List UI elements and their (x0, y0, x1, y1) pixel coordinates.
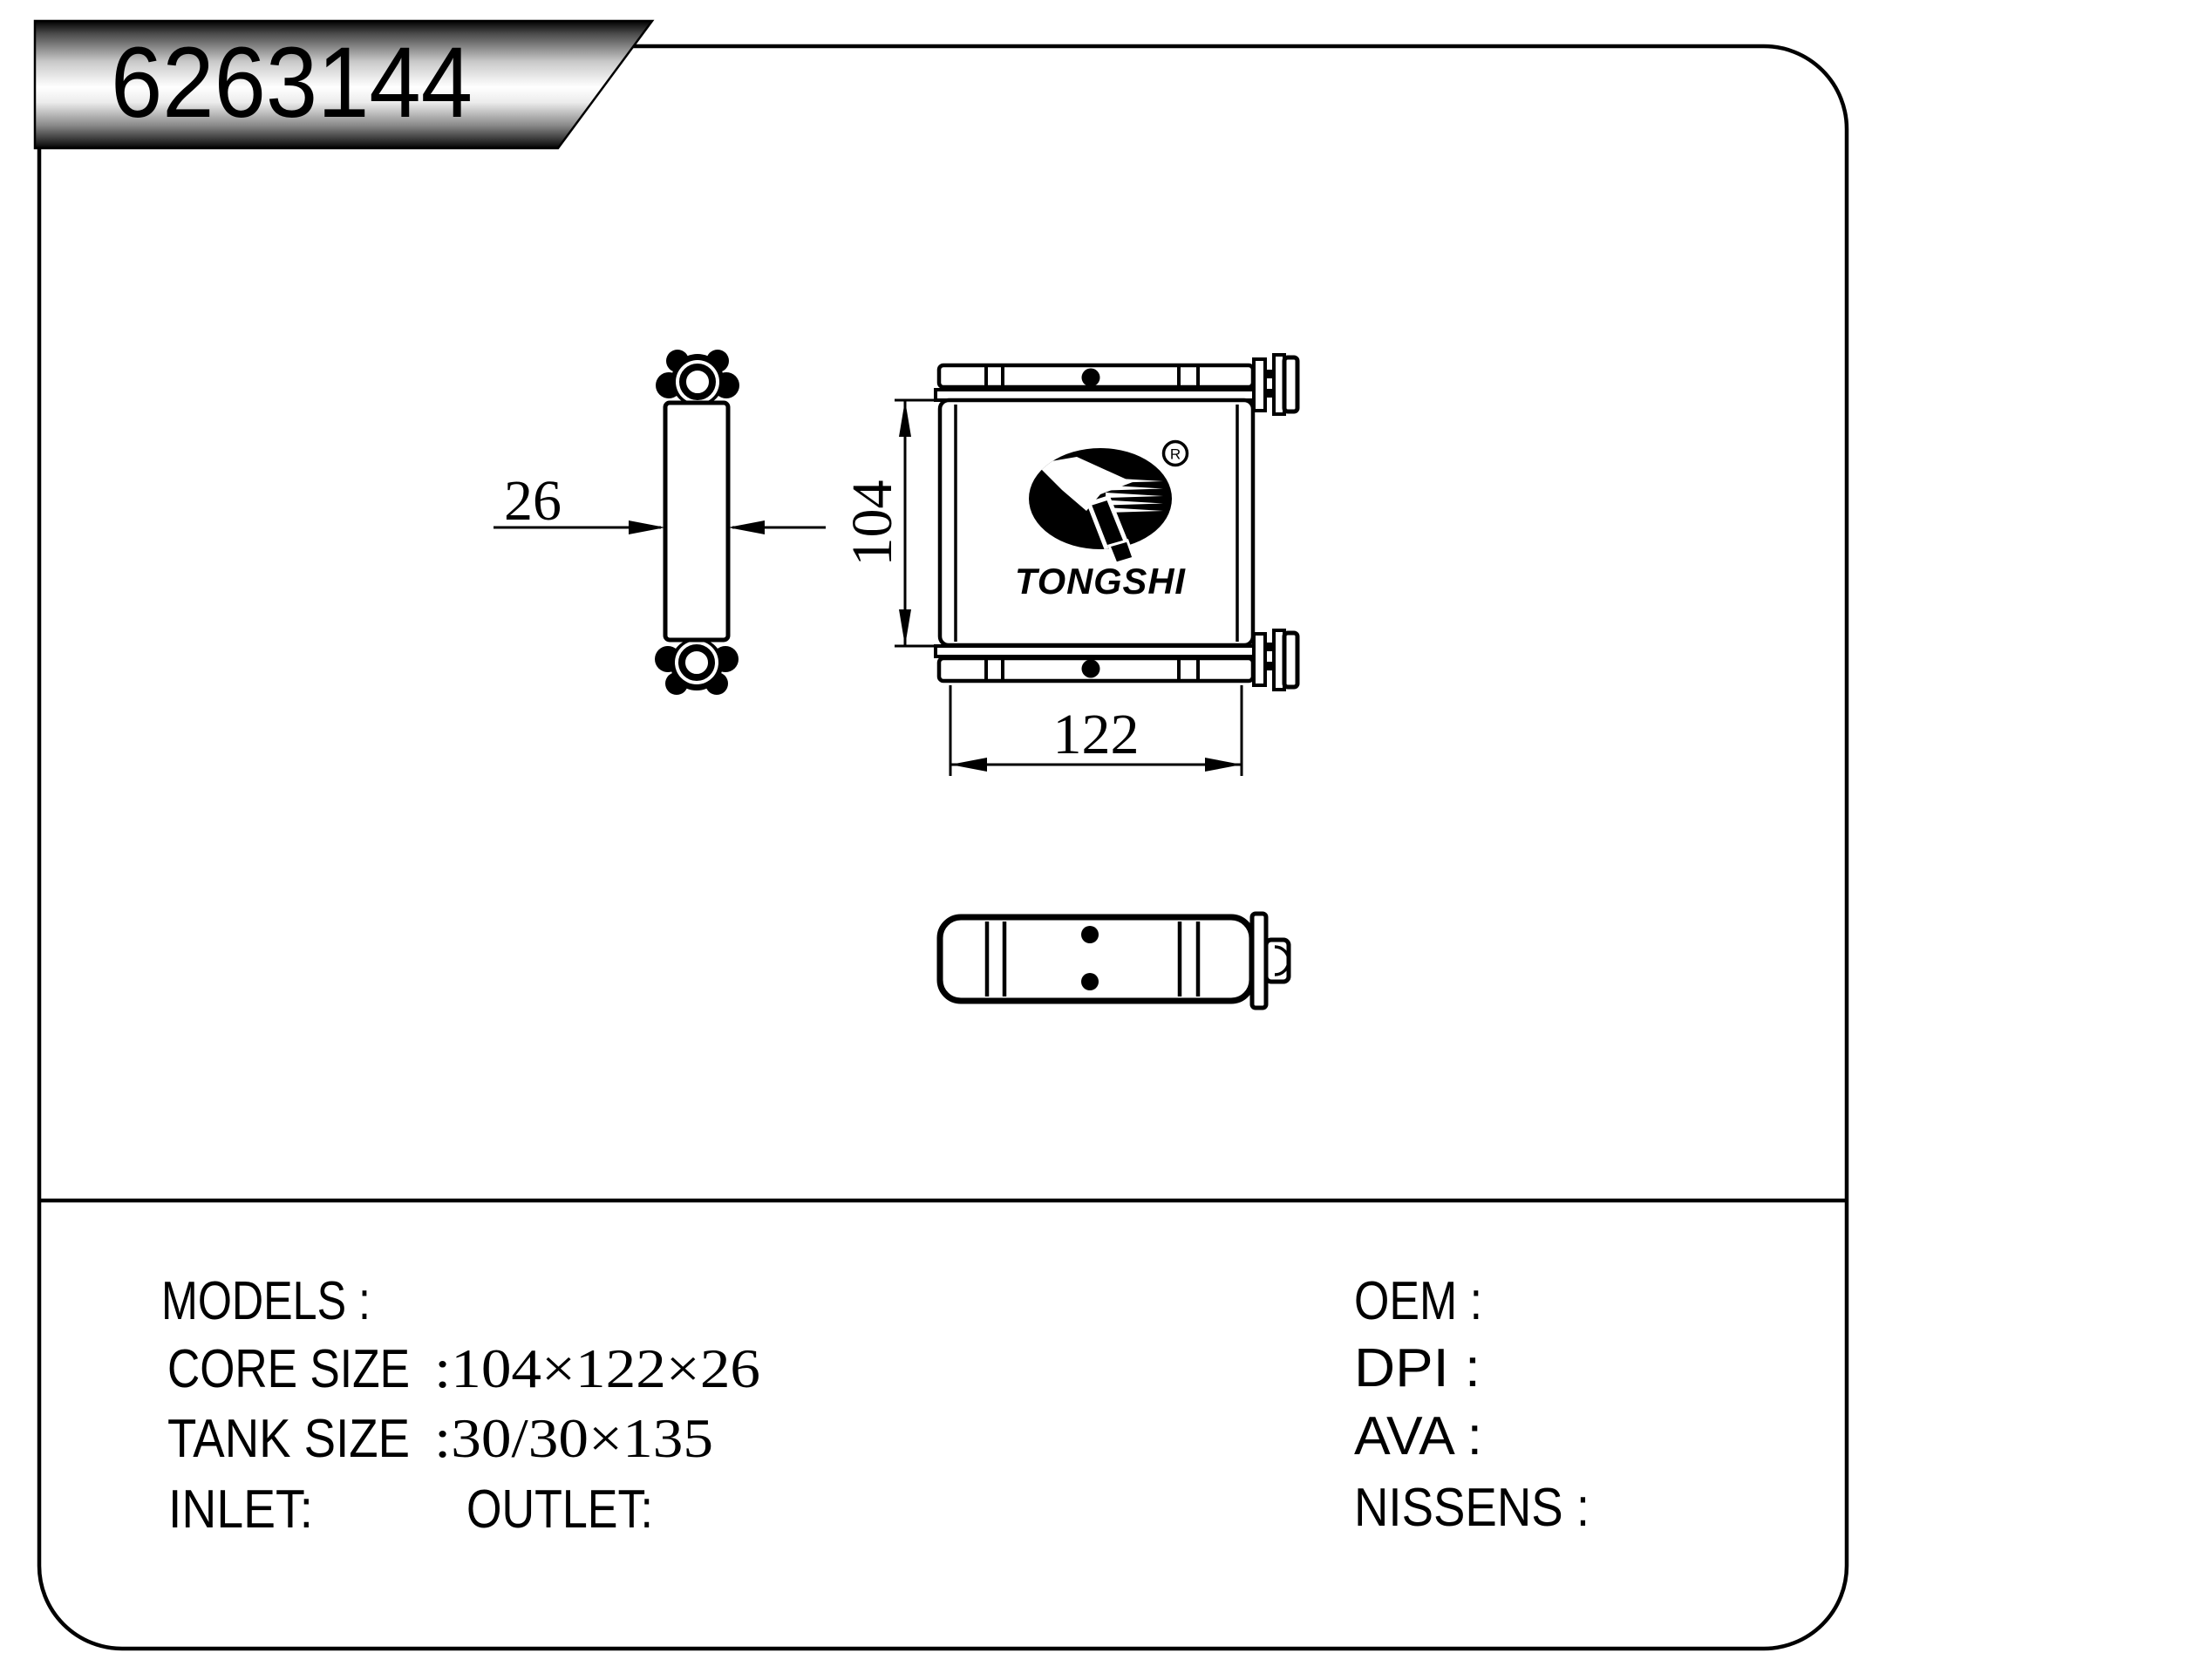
bottom-view-port-icon (1081, 973, 1099, 990)
dpi-label: DPI : (1354, 1338, 1481, 1398)
oem-label: OEM : (1354, 1271, 1482, 1331)
bottom-tank (936, 646, 1256, 681)
part-number-banner: 6263144 (35, 21, 652, 148)
bottom-view (940, 914, 1289, 1008)
registered-mark: R (1164, 442, 1188, 466)
bottom-view-port-icon (1081, 926, 1099, 943)
inlet-label: INLET: (168, 1479, 313, 1540)
part-number-text: 6263144 (111, 27, 473, 139)
dim-height-label: 104 (841, 480, 904, 567)
technical-drawing-sheet: 26 (0, 0, 2192, 1680)
models-label: MODELS : (161, 1271, 371, 1331)
top-grommet-ring-icon (683, 367, 712, 397)
dim-depth-label: 26 (504, 469, 562, 533)
nissens-label: NISSENS : (1354, 1478, 1590, 1538)
front-view: R TONGSHI (936, 355, 1297, 690)
core-size-label: CORE SIZE (167, 1339, 410, 1399)
tank-size-label: TANK SIZE (167, 1409, 410, 1469)
bottom-tank-port-icon (1082, 660, 1100, 678)
dim-width-label: 122 (1053, 703, 1140, 766)
core-size-value: :104×122×26 (434, 1337, 760, 1399)
bottom-grommet-ring-icon (682, 648, 711, 677)
svg-text:R: R (1170, 446, 1181, 463)
side-view-body (665, 403, 728, 640)
brand-name: TONGSHI (1015, 561, 1186, 602)
ava-label: AVA : (1354, 1406, 1482, 1466)
top-tank (936, 365, 1256, 400)
tank-size-value: :30/30×135 (434, 1407, 713, 1469)
inlet-fitting-top-icon (1254, 355, 1297, 414)
outlet-label: OUTLET: (466, 1479, 653, 1540)
outlet-fitting-bottom-icon (1254, 630, 1297, 690)
top-tank-port-icon (1082, 369, 1100, 387)
